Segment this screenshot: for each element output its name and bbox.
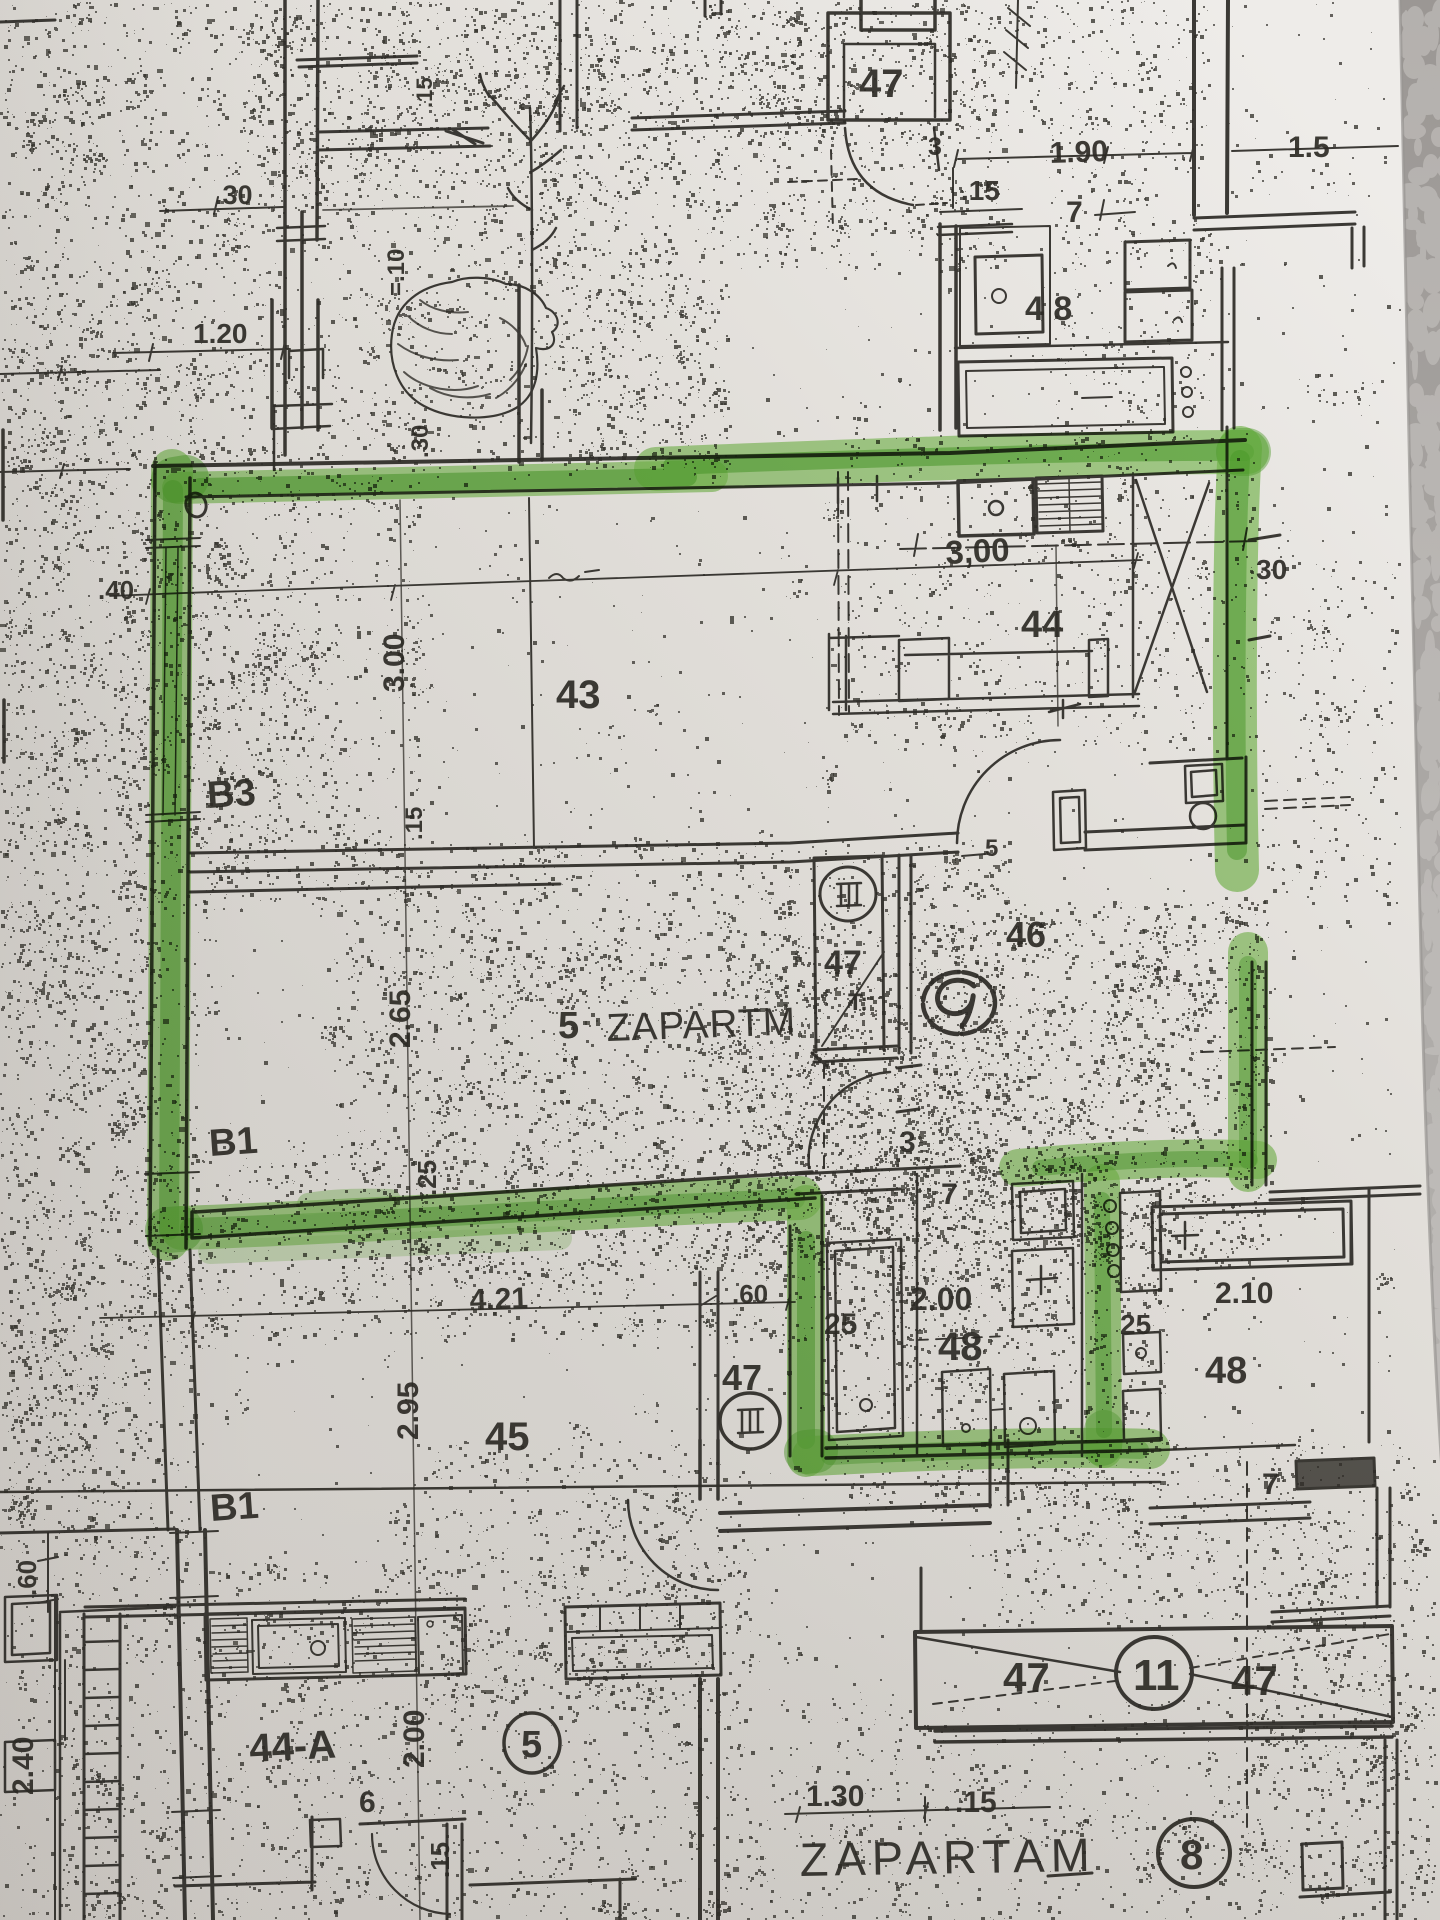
- svg-text:47: 47: [824, 944, 862, 982]
- svg-text:.15: .15: [961, 175, 1000, 206]
- svg-text:45: 45: [485, 1415, 530, 1459]
- svg-text:B1: B1: [208, 1120, 259, 1165]
- svg-text:ZAPARTM: ZAPARTM: [606, 1000, 797, 1050]
- svg-text:3: 3: [899, 1126, 916, 1159]
- svg-text:30: 30: [1256, 554, 1287, 585]
- svg-text:.60: .60: [732, 1279, 768, 1309]
- svg-text:25: 25: [1120, 1309, 1151, 1340]
- svg-text:2.40: 2.40: [7, 1737, 40, 1795]
- svg-text:47: 47: [1003, 1654, 1050, 1701]
- svg-text:.60: .60: [12, 1560, 42, 1596]
- svg-text:B1: B1: [209, 1485, 260, 1530]
- svg-text:43: 43: [556, 673, 601, 717]
- svg-text:ZAPARTAM: ZAPARTAM: [799, 1828, 1096, 1886]
- svg-text:5: 5: [985, 835, 998, 862]
- svg-text:1.90: 1.90: [1049, 135, 1109, 170]
- svg-text:1.20: 1.20: [193, 318, 248, 349]
- svg-text:4.21: 4.21: [469, 1282, 529, 1317]
- svg-text:44-A: 44-A: [248, 1723, 337, 1771]
- svg-text:.30: .30: [215, 180, 253, 210]
- svg-text:.15: .15: [412, 77, 437, 108]
- svg-text:7: 7: [941, 1178, 958, 1211]
- svg-text:.40: .40: [98, 575, 134, 605]
- svg-text:2.00: 2.00: [398, 1710, 431, 1768]
- svg-text:3: 3: [928, 133, 942, 161]
- svg-text:2.95: 2.95: [392, 1382, 425, 1440]
- svg-text:11: 11: [1133, 1651, 1180, 1700]
- svg-text:5: 5: [558, 1005, 579, 1047]
- svg-text:44: 44: [1021, 604, 1063, 646]
- svg-text:5: 5: [521, 1724, 542, 1766]
- svg-text:48: 48: [1205, 1350, 1247, 1392]
- svg-text:.15: .15: [425, 1842, 455, 1878]
- svg-text:1.30: 1.30: [806, 1780, 864, 1813]
- svg-text:48: 48: [938, 1325, 983, 1369]
- svg-text:2.00: 2.00: [910, 1281, 972, 1317]
- svg-text:4 8: 4 8: [1025, 290, 1072, 328]
- svg-text:T:: T:: [848, 989, 868, 1016]
- svg-text:47: 47: [1231, 1657, 1278, 1704]
- svg-text:.15: .15: [401, 807, 428, 840]
- svg-text:2.10: 2.10: [1215, 1277, 1273, 1310]
- svg-text:6: 6: [359, 1786, 376, 1819]
- svg-text:3.00: 3.00: [378, 634, 411, 692]
- svg-text:.25: .25: [412, 1160, 442, 1196]
- svg-text:7: 7: [1066, 196, 1083, 229]
- svg-text:25: 25: [824, 1308, 857, 1341]
- svg-text:=.10: =.10: [383, 249, 410, 296]
- svg-text:.30: .30: [407, 425, 434, 458]
- svg-text:1.5: 1.5: [1288, 131, 1330, 164]
- svg-text:.15: .15: [955, 1786, 997, 1819]
- svg-text:7: 7: [1262, 1468, 1279, 1501]
- svg-text:46: 46: [1006, 914, 1046, 955]
- svg-text:47: 47: [859, 62, 904, 106]
- svg-text:B3: B3: [206, 772, 257, 817]
- svg-text:8: 8: [1180, 1831, 1203, 1878]
- svg-text:3,00: 3,00: [944, 531, 1010, 571]
- svg-text:2.65: 2.65: [384, 990, 417, 1048]
